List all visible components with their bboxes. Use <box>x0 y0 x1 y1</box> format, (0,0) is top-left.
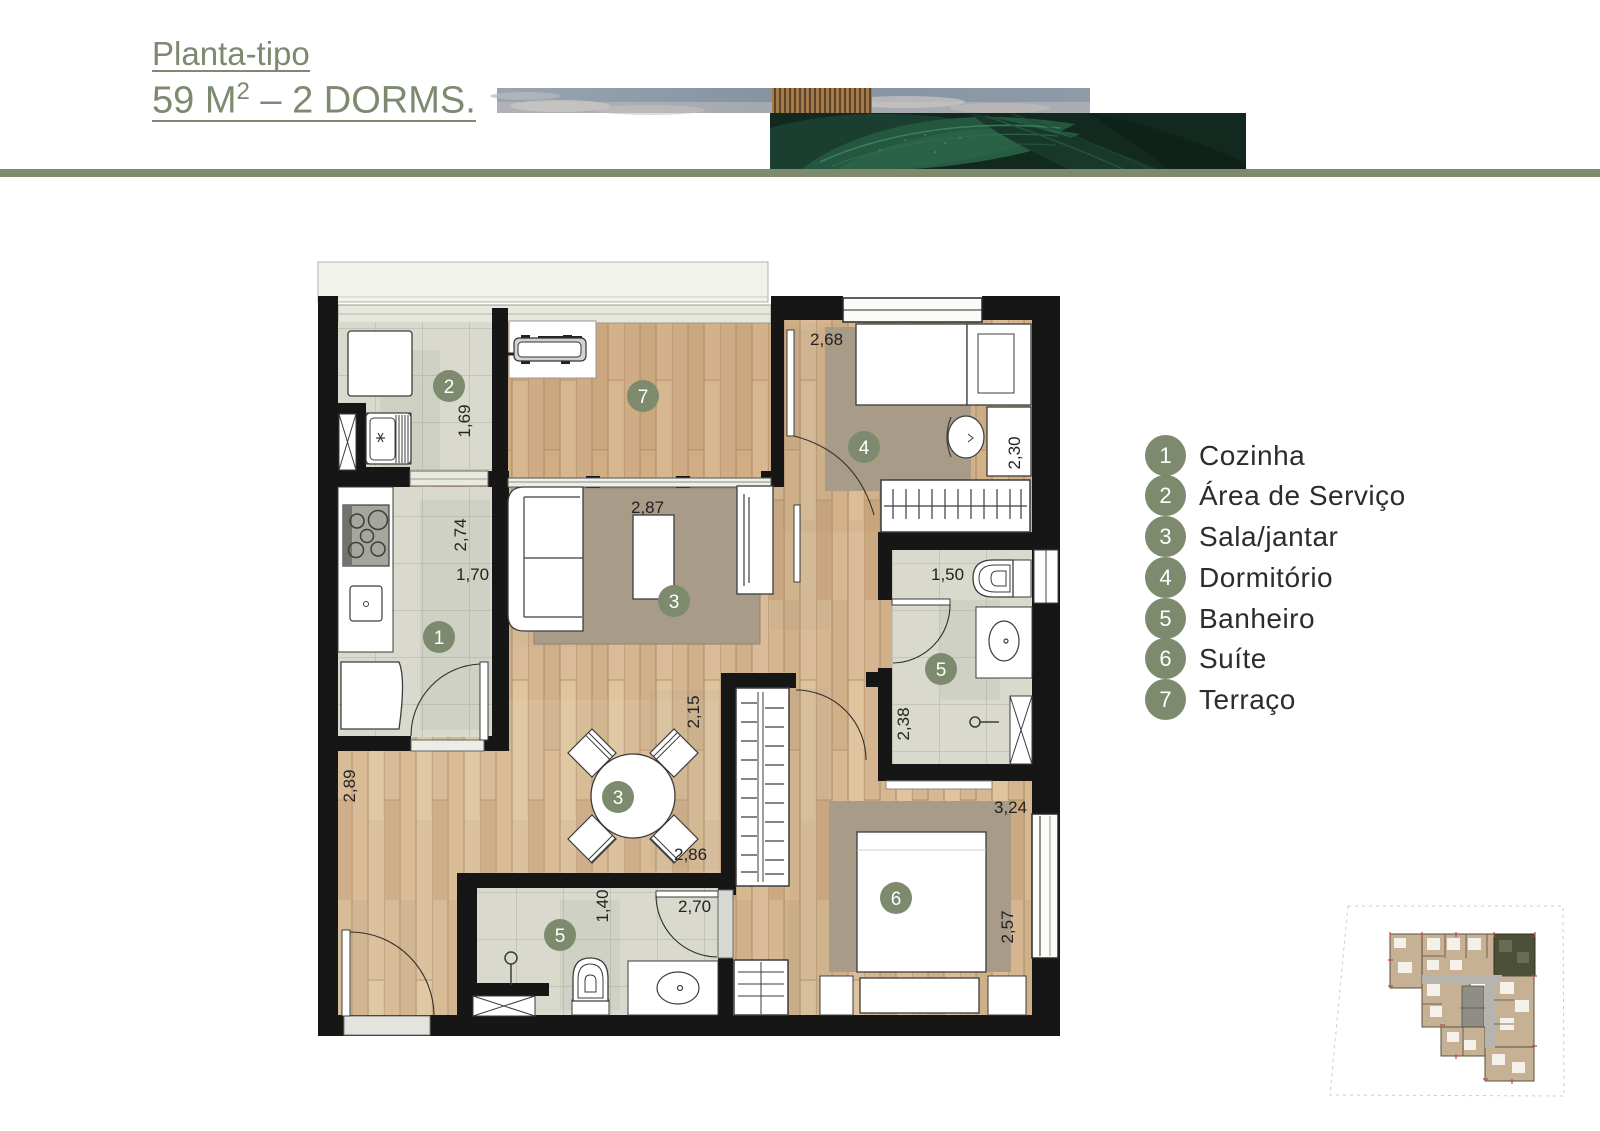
svg-text:3: 3 <box>613 788 624 809</box>
svg-text:1,70: 1,70 <box>456 565 489 584</box>
svg-text:2,86: 2,86 <box>674 845 707 864</box>
svg-text:2,68: 2,68 <box>810 330 843 349</box>
svg-text:1,69: 1,69 <box>455 404 474 437</box>
svg-text:2,30: 2,30 <box>1005 436 1024 469</box>
svg-text:2,70: 2,70 <box>678 897 711 916</box>
svg-text:2,74: 2,74 <box>451 518 470 551</box>
svg-text:2,38: 2,38 <box>894 707 913 740</box>
svg-text:5: 5 <box>936 660 947 681</box>
svg-text:4: 4 <box>859 438 870 459</box>
svg-text:3,24: 3,24 <box>994 798 1027 817</box>
svg-text:2,87: 2,87 <box>631 498 664 517</box>
svg-text:3: 3 <box>669 592 680 613</box>
svg-text:1,50: 1,50 <box>931 565 964 584</box>
svg-text:7: 7 <box>638 387 649 408</box>
svg-text:2,57: 2,57 <box>998 910 1017 943</box>
svg-text:2,15: 2,15 <box>684 695 703 728</box>
svg-text:1: 1 <box>434 628 445 649</box>
svg-text:6: 6 <box>891 889 902 910</box>
svg-text:1,40: 1,40 <box>593 889 612 922</box>
svg-text:2,89: 2,89 <box>340 769 359 802</box>
svg-text:2: 2 <box>444 377 455 398</box>
svg-text:5: 5 <box>555 926 566 947</box>
